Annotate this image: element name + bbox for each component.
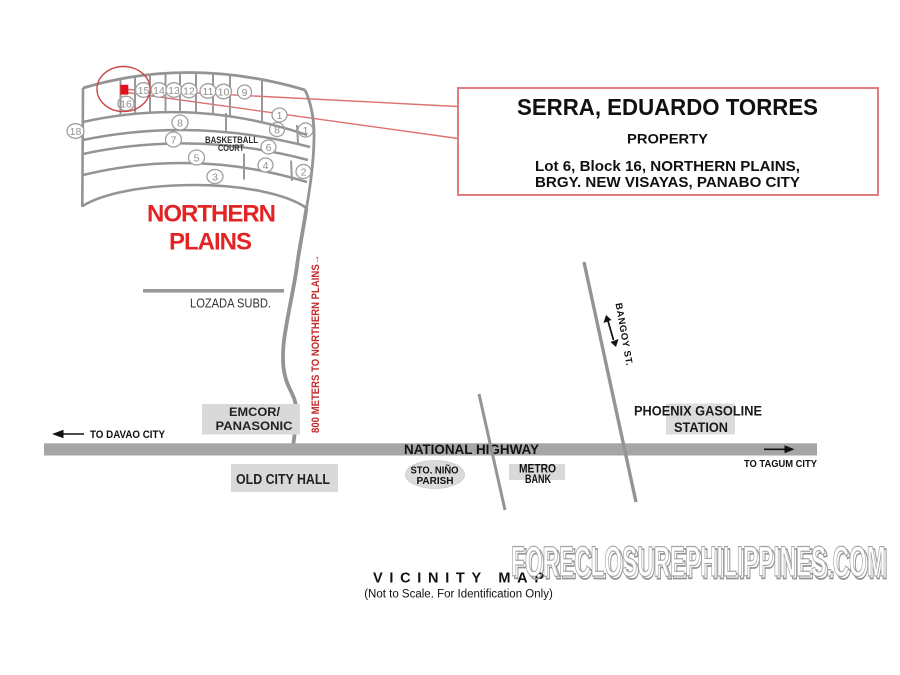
svg-text:18: 18 — [70, 126, 82, 138]
svg-text:16: 16 — [120, 99, 132, 111]
svg-text:5: 5 — [194, 153, 200, 165]
svg-text:Lot 6, Block 16, NORTHERN PLAI: Lot 6, Block 16, NORTHERN PLAINS, — [535, 158, 800, 175]
svg-text:TO TAGUM CITY: TO TAGUM CITY — [744, 459, 817, 470]
svg-text:OLD CITY HALL: OLD CITY HALL — [236, 472, 330, 488]
svg-text:14: 14 — [153, 85, 165, 97]
svg-text:PLAINS: PLAINS — [169, 229, 252, 256]
svg-text:STATION: STATION — [674, 420, 728, 435]
svg-text:PARISH: PARISH — [417, 475, 454, 487]
svg-text:2: 2 — [301, 167, 307, 179]
svg-text:TO DAVAO CITY: TO DAVAO CITY — [90, 429, 166, 441]
svg-text:11: 11 — [203, 86, 214, 98]
svg-text:3: 3 — [212, 172, 218, 184]
svg-text:4: 4 — [263, 160, 269, 172]
svg-text:8: 8 — [177, 118, 183, 130]
svg-text:9: 9 — [242, 87, 248, 99]
svg-text:12: 12 — [183, 86, 195, 98]
svg-text:1: 1 — [303, 125, 309, 137]
svg-text:COURT: COURT — [218, 143, 244, 154]
svg-text:NATIONAL HIGHWAY: NATIONAL HIGHWAY — [404, 442, 539, 457]
svg-text:BANGOY ST.: BANGOY ST. — [613, 302, 635, 367]
svg-text:7: 7 — [171, 135, 177, 147]
svg-text:6: 6 — [266, 142, 272, 154]
svg-text:1: 1 — [277, 110, 283, 122]
svg-text:FORECLOSUREPHILIPPINES.COM: FORECLOSUREPHILIPPINES.COM — [511, 538, 886, 586]
svg-text:(Not to Scale. For Identificat: (Not to Scale. For Identification Only) — [364, 588, 553, 600]
svg-text:EMCOR/: EMCOR/ — [229, 405, 281, 419]
svg-text:NORTHERN: NORTHERN — [147, 201, 275, 228]
svg-text:SERRA, EDUARDO TORRES: SERRA, EDUARDO TORRES — [517, 94, 818, 120]
svg-text:PHOENIX GASOLINE: PHOENIX GASOLINE — [634, 404, 762, 419]
svg-text:15: 15 — [138, 85, 150, 97]
svg-text:BRGY. NEW VISAYAS, PANABO CITY: BRGY. NEW VISAYAS, PANABO CITY — [535, 174, 800, 191]
svg-text:LOZADA SUBD.: LOZADA SUBD. — [190, 297, 271, 311]
svg-text:PROPERTY: PROPERTY — [627, 131, 709, 147]
svg-text:PANASONIC: PANASONIC — [216, 419, 293, 433]
svg-text:BANK: BANK — [525, 472, 551, 486]
svg-text:10: 10 — [218, 87, 230, 99]
svg-text:800 METERS TO NORTHERN PLAINS→: 800 METERS TO NORTHERN PLAINS→ — [310, 255, 322, 433]
svg-text:13: 13 — [168, 85, 180, 97]
svg-text:8: 8 — [274, 125, 280, 137]
